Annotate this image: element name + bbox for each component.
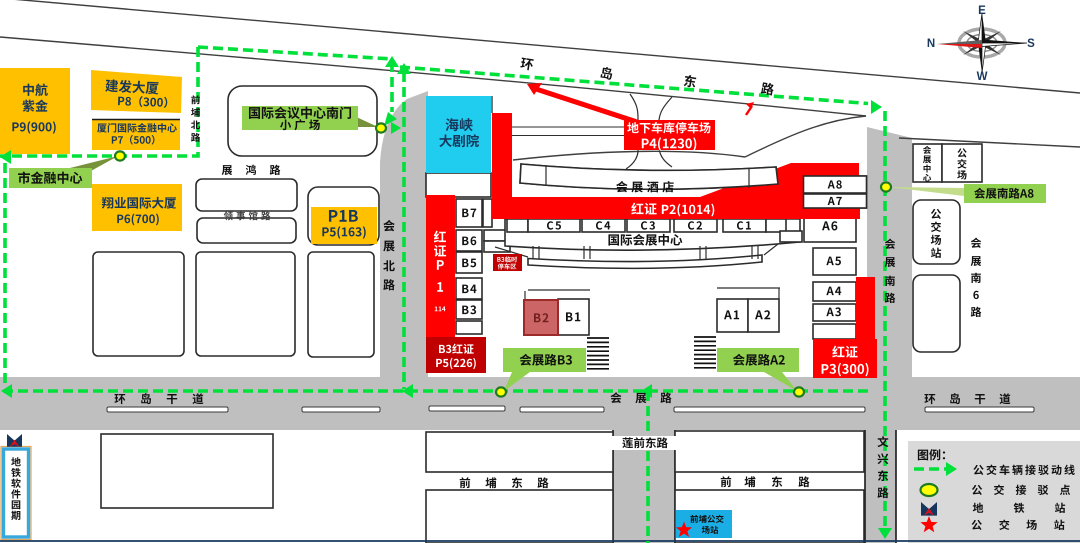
svg-text:E: E [978,5,986,17]
svg-text:S: S [1027,38,1035,50]
svg-text:W: W [977,71,988,83]
svg-text:N: N [927,38,935,50]
